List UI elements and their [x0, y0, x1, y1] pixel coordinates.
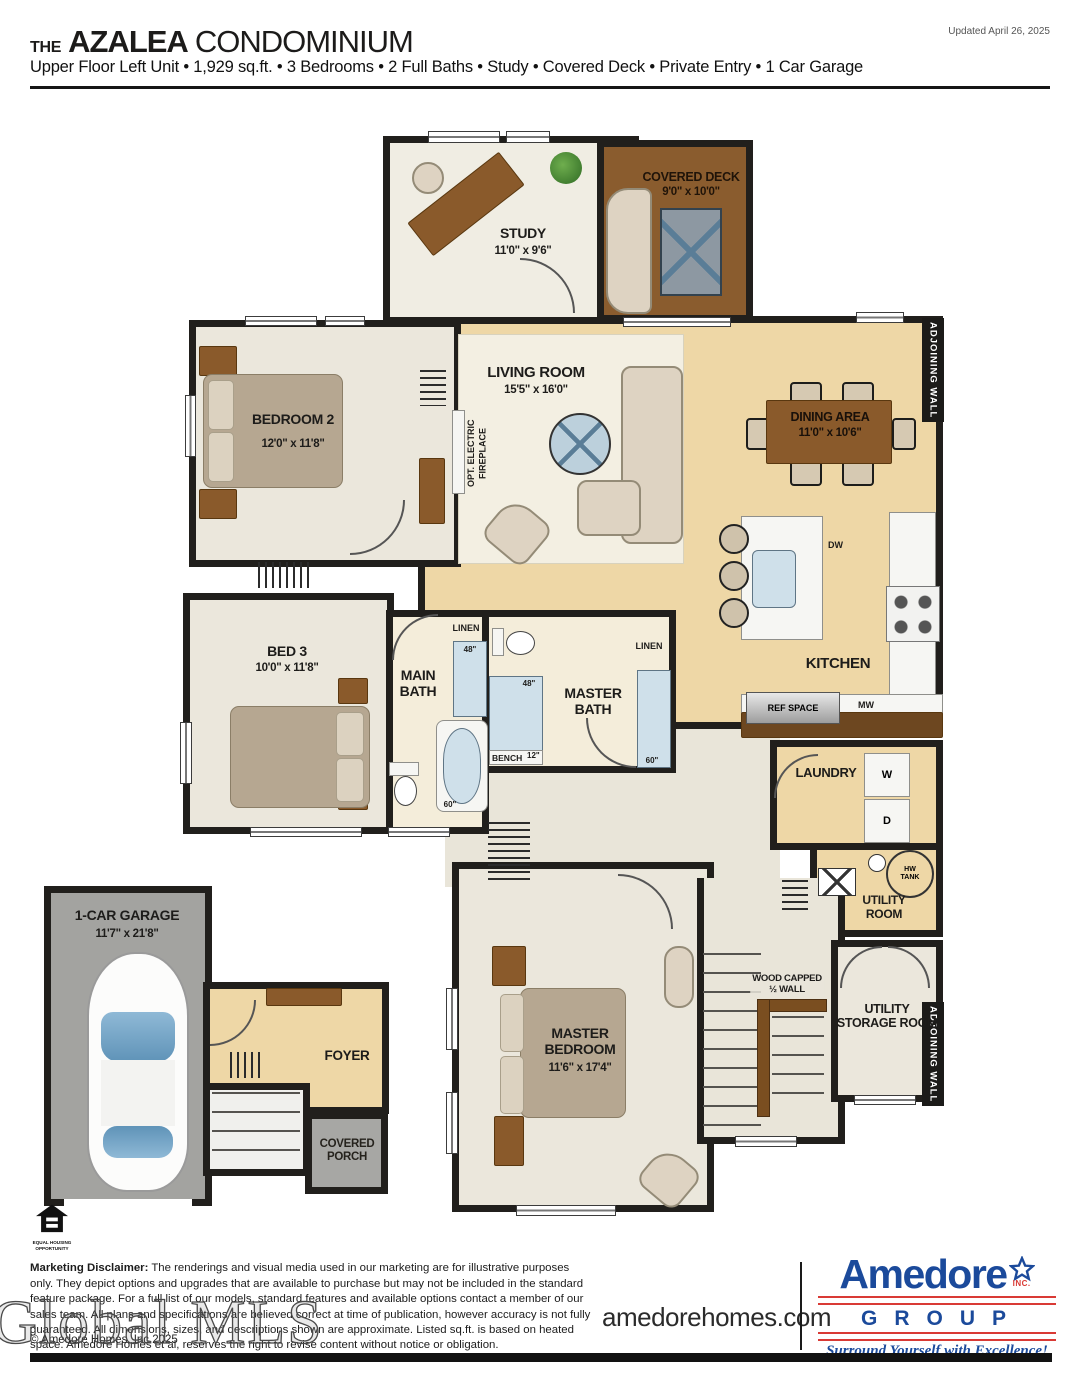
- dresser-icon: [492, 946, 526, 986]
- garage-dims: 11'7" x 21'8": [95, 928, 158, 941]
- sofa-chaise-icon: [577, 480, 641, 536]
- master-bath-label: MASTER BATH: [564, 686, 621, 718]
- window: [250, 827, 362, 837]
- half-wall: [757, 999, 770, 1117]
- toilet-bowl-icon: [394, 776, 417, 806]
- amedore-group-logo: Amedore INC. GROUP Surround Yourself wit…: [818, 1254, 1056, 1360]
- linen-label: LINEN: [636, 641, 663, 651]
- pillow-icon: [500, 1056, 524, 1114]
- dining-area-label: DINING AREA: [791, 410, 870, 424]
- floor-drain-icon: [868, 854, 886, 872]
- closet-rack: [258, 562, 312, 588]
- bar-stool-icon: [719, 598, 749, 628]
- foyer-label: FOYER: [324, 1048, 369, 1063]
- closet-rack: [420, 370, 446, 406]
- bar-stool-icon: [719, 561, 749, 591]
- hw-tank-icon: HW TANK: [886, 850, 934, 898]
- stair-flight: [772, 1016, 824, 1106]
- vanity-48-label: 48": [464, 645, 477, 654]
- adjoining-wall-top: ADJOINING WALL: [922, 318, 944, 422]
- master-bedroom-dims: 11'6" x 17'4": [548, 1062, 611, 1075]
- equal-housing-icon: [34, 1203, 70, 1235]
- bench-label: BENCH: [492, 753, 522, 763]
- laundry-label: LAUNDRY: [796, 766, 857, 781]
- nightstand-icon: [199, 346, 237, 376]
- covered-porch-label: COVERED PORCH: [320, 1138, 375, 1164]
- desk-chair-icon: [412, 162, 444, 194]
- window: [446, 1092, 458, 1154]
- living-room-label: LIVING ROOM: [487, 364, 585, 381]
- ref-space: REF SPACE: [746, 692, 840, 724]
- entry-stair-flight: [212, 1092, 300, 1168]
- garage-label: 1-CAR GARAGE: [75, 908, 180, 924]
- hw-tank-label: HW TANK: [901, 866, 920, 882]
- pillow-icon: [500, 994, 524, 1052]
- fireplace-icon: [452, 410, 465, 494]
- red-rule-bottom: [818, 1332, 1056, 1341]
- garage-door-opening: [64, 1199, 192, 1209]
- logo-divider: [800, 1262, 802, 1350]
- deck-sofa-icon: [606, 188, 652, 314]
- red-rule-top: [818, 1296, 1056, 1305]
- plant-icon: [550, 152, 582, 184]
- dining-chair-icon: [892, 418, 916, 450]
- window: [854, 1095, 916, 1105]
- dryer-label: D: [883, 815, 891, 827]
- utility-storage-label: UTILITY STORAGE ROOM: [837, 1002, 937, 1031]
- fireplace-label: OPT. ELECTRIC FIREPLACE: [466, 398, 494, 508]
- window: [856, 312, 904, 323]
- master-bedroom-label: MASTER BEDROOM: [544, 1026, 615, 1058]
- bedroom-2-dims: 12'0" x 11'8": [261, 438, 324, 451]
- window: [516, 1205, 616, 1216]
- footer-bar: [30, 1353, 1052, 1362]
- window: [388, 827, 450, 837]
- window: [506, 131, 550, 143]
- closet-rack: [782, 880, 808, 912]
- foyer-bench-icon: [266, 988, 342, 1006]
- window: [180, 722, 192, 784]
- washer-box: W: [864, 753, 910, 797]
- stove-icon: [886, 586, 940, 642]
- main-bath-label: MAIN BATH: [400, 668, 437, 700]
- pillow-icon: [208, 432, 234, 482]
- covered-deck-label: COVERED DECK: [642, 170, 739, 184]
- utility-sink-icon: [818, 868, 856, 896]
- toilet-tank-icon: [492, 628, 504, 656]
- dryer-box: D: [864, 799, 910, 843]
- window: [623, 317, 731, 327]
- adjoining-wall-top-label: ADJOINING WALL: [928, 322, 939, 418]
- living-room-dims: 15'5" x 16'0": [504, 384, 568, 397]
- car-rear-glass: [103, 1126, 173, 1158]
- nightstand-icon: [199, 489, 237, 519]
- website-url: amedorehomes.com: [602, 1302, 831, 1333]
- dw-label: DW: [828, 540, 843, 550]
- global-mls-watermark: Global MLS: [0, 1288, 324, 1359]
- study-label: STUDY: [500, 226, 546, 242]
- window: [245, 316, 317, 326]
- nightstand-icon: [338, 678, 368, 704]
- kitchen-label: KITCHEN: [806, 655, 871, 672]
- dining-area-dims: 11'0" x 10'6": [798, 427, 861, 440]
- island-sink-icon: [752, 550, 796, 608]
- toilet-tank-icon: [389, 762, 419, 776]
- equal-housing-text: EQUAL HOUSING OPPORTUNITY: [32, 1240, 72, 1251]
- window: [735, 1136, 797, 1147]
- shower-48-label: 48": [523, 679, 536, 688]
- bench-12-label: 12": [527, 751, 540, 760]
- window: [446, 988, 458, 1050]
- car-icon: [87, 952, 189, 1192]
- study-dims: 11'0" x 9'6": [495, 245, 552, 258]
- dresser-icon: [494, 1116, 524, 1166]
- window: [185, 395, 196, 457]
- window: [325, 316, 365, 326]
- bedroom-2-label: BEDROOM 2: [252, 412, 334, 428]
- car-windshield: [101, 1012, 175, 1062]
- inc-text: INC.: [1013, 1279, 1031, 1288]
- linen-label: LINEN: [453, 623, 480, 633]
- chaise-icon: [664, 946, 694, 1008]
- floor-plan: ADJOINING WALL ADJOINING WALL STUDY 11'0…: [0, 0, 1080, 1398]
- wood-capped-wall-label: WOOD CAPPED ½ WALL: [750, 974, 824, 996]
- round-table-icon: [549, 413, 611, 475]
- vanity-60-label: 60": [646, 756, 659, 765]
- car-roof: [101, 1060, 175, 1126]
- tub-basin-icon: [443, 728, 481, 804]
- tub-60-label: 60": [444, 800, 457, 809]
- toilet-bowl-icon: [506, 631, 535, 655]
- window: [428, 131, 500, 143]
- utility-room-label: UTILITY ROOM: [862, 894, 905, 921]
- pillow-icon: [336, 712, 364, 756]
- washer-label: W: [882, 769, 892, 781]
- pillow-icon: [208, 380, 234, 430]
- equal-housing-logo: EQUAL HOUSING OPPORTUNITY: [32, 1203, 72, 1251]
- deck-table-icon: [660, 208, 722, 296]
- ref-space-label: REF SPACE: [768, 703, 819, 713]
- group-text: GROUP: [818, 1306, 1056, 1331]
- bar-stool-icon: [719, 524, 749, 554]
- pillow-icon: [336, 758, 364, 802]
- covered-deck-dims: 9'0" x 10'0": [662, 186, 720, 199]
- vanity-icon: [637, 670, 671, 768]
- closet-rack: [230, 1052, 260, 1078]
- dresser-icon: [419, 458, 445, 524]
- disclaimer-label: Marketing Disclaimer:: [30, 1262, 148, 1274]
- amedore-brand-text: Amedore: [839, 1254, 1006, 1295]
- bed-3-dims: 10'0" x 11'8": [255, 662, 318, 675]
- mw-label: MW: [858, 700, 874, 710]
- bed-3-label: BED 3: [267, 644, 307, 660]
- closet-rack: [488, 822, 530, 884]
